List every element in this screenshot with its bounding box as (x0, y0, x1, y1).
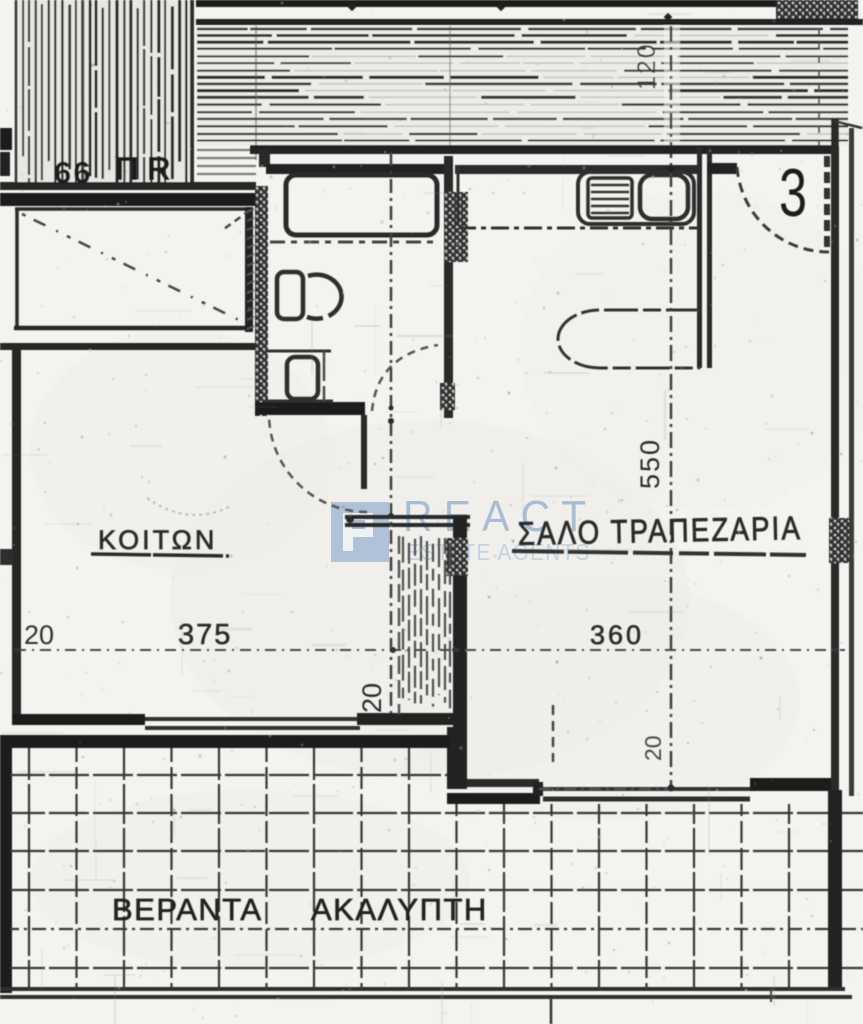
svg-text:3: 3 (779, 155, 807, 231)
svg-text:ΑΚΑΛΥΠΤΗ: ΑΚΑΛΥΠΤΗ (311, 892, 488, 927)
svg-text:ΣΑΛΟ ΤΡΑΠΕΖΑΡΙΑ: ΣΑΛΟ ΤΡΑΠΕΖΑΡΙΑ (517, 510, 802, 553)
svg-text:550: 550 (635, 438, 665, 489)
svg-text:360: 360 (590, 620, 644, 650)
svg-text:20: 20 (24, 620, 54, 650)
svg-text:375: 375 (178, 619, 232, 651)
svg-text:ΠR: ΠR (115, 150, 179, 187)
svg-text:ΒΕΡΑΝΤΑ: ΒΕΡΑΝΤΑ (112, 892, 263, 927)
svg-text:66: 66 (54, 155, 92, 190)
svg-text:120: 120 (633, 42, 661, 90)
svg-text:20: 20 (357, 683, 387, 713)
svg-text:20: 20 (640, 735, 666, 761)
svg-text:ΚΟΙΤΩΝ: ΚΟΙΤΩΝ (98, 525, 217, 555)
